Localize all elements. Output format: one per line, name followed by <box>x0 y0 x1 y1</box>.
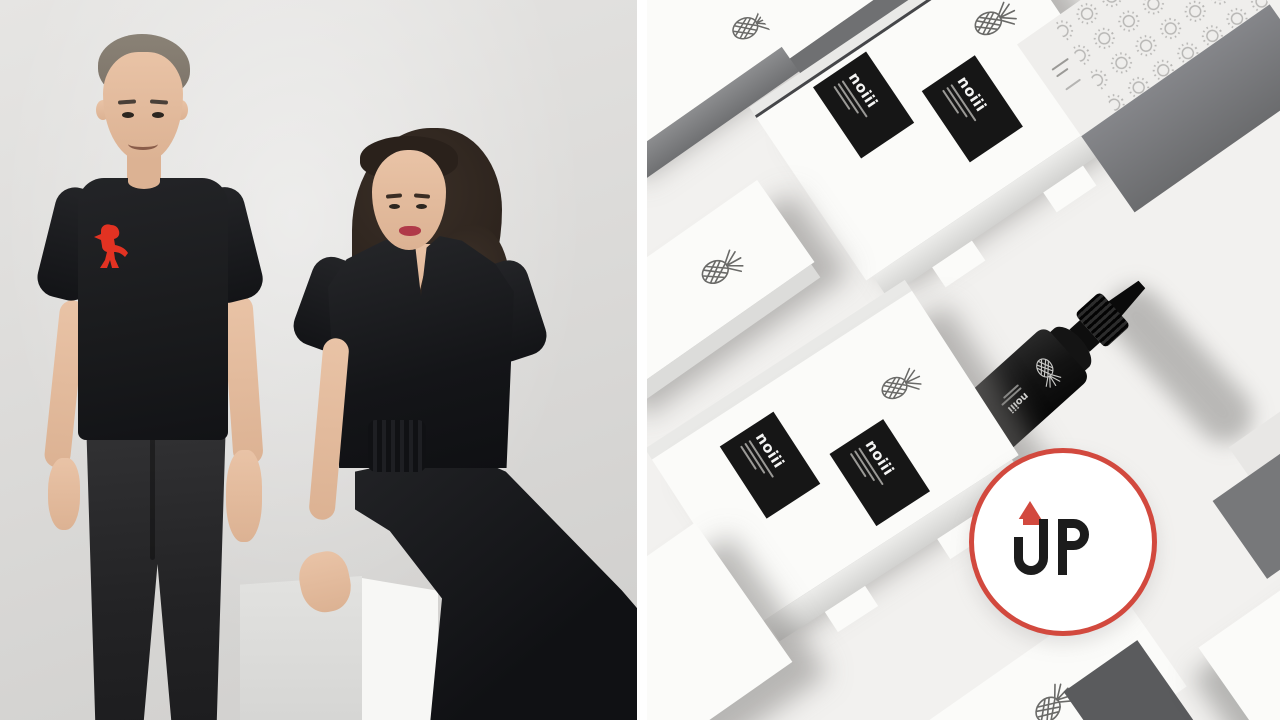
man-jeans <box>80 420 232 720</box>
cube-front-face <box>362 578 438 720</box>
man-tshirt <box>78 178 228 440</box>
product-label: noiii <box>922 55 1023 162</box>
man-eye-left <box>122 112 134 118</box>
man-smile <box>128 138 158 150</box>
man-jeans-seam <box>150 430 155 560</box>
pineapple-icon <box>965 0 1024 47</box>
man-left-hand <box>48 458 80 530</box>
man-collar <box>128 174 160 189</box>
pineapple-icon <box>692 241 751 296</box>
woman-eye-left <box>389 204 400 209</box>
man-right-arm <box>222 294 264 466</box>
product-flatlay: noiii noiii <box>647 0 1280 720</box>
product-label: noiii <box>830 419 931 526</box>
product-label: noiii <box>720 412 821 519</box>
photo-collage: noiii noiii <box>0 0 1280 720</box>
up-logo: UP <box>969 448 1157 636</box>
panel-divider <box>637 0 647 720</box>
founders-photo <box>0 0 637 720</box>
man-eye-right <box>152 112 164 118</box>
pineapple-icon <box>872 360 928 410</box>
up-letter-p-bowl <box>1058 519 1089 550</box>
woman-waist-ruche <box>368 420 426 472</box>
woman-lips <box>399 226 421 236</box>
box-corner-bottom-right <box>1198 562 1280 720</box>
up-letter-u-gap <box>1014 519 1023 537</box>
woman-eye-right <box>416 204 427 209</box>
man-right-hand <box>226 450 262 542</box>
dino-icon <box>88 222 128 270</box>
